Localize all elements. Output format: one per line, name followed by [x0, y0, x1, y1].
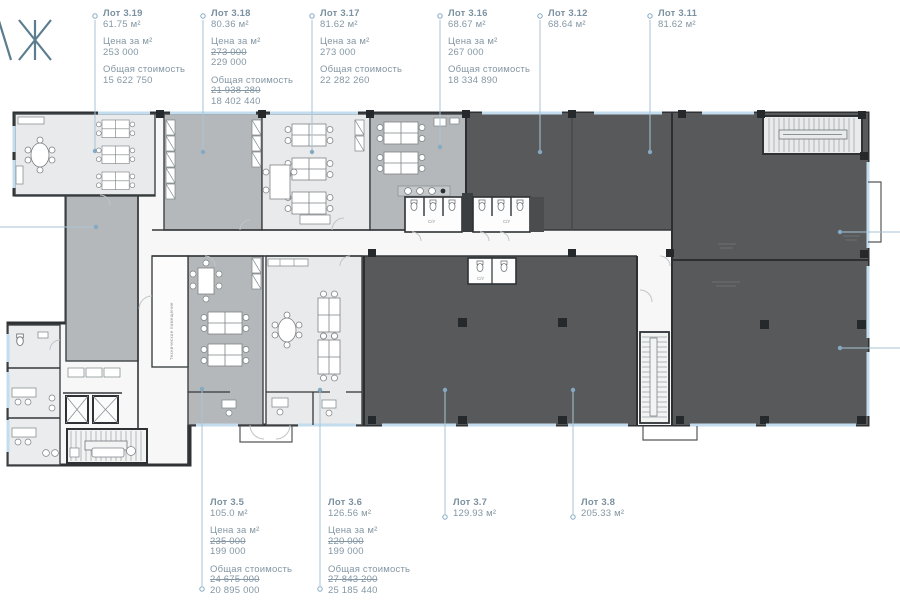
room-dark-right[interactable]	[672, 113, 868, 425]
elevators	[66, 396, 118, 423]
lot-total-old: 24 675 000	[210, 575, 292, 586]
total-caption: Общая стоимость	[448, 65, 530, 76]
lot-card-3-19[interactable]: Лот 3.19 61.75 м² Цена за м² 253 000 Общ…	[103, 9, 185, 86]
lot-area: 129.93 м²	[453, 509, 496, 520]
bathroom-middle	[468, 258, 516, 284]
lot-card-3-8[interactable]: Лот 3.8 205.33 м²	[581, 498, 624, 519]
lot-title: Лот 3.7	[453, 498, 496, 509]
price-caption: Цена за м²	[103, 37, 185, 48]
price-caption: Цена за м²	[210, 526, 292, 537]
lot-total-old: 27 843 200	[328, 575, 410, 586]
lot-title: Лот 3.8	[581, 498, 624, 509]
lot-card-3-5[interactable]: Лот 3.5 105.0 м² Цена за м² 235 000 199 …	[210, 498, 292, 596]
lot-price: 253 000	[103, 48, 185, 59]
lot-price: 267 000	[448, 48, 530, 59]
stairwell-top-right	[763, 116, 862, 154]
brand-logo-partial	[0, 6, 60, 70]
lot-title: Лот 3.5	[210, 498, 292, 509]
lot-area: 126.56 м²	[328, 509, 410, 520]
lot-area: 205.33 м²	[581, 509, 624, 520]
lot-title: Лот 3.18	[211, 9, 293, 20]
stairwell-right	[640, 332, 669, 423]
lot-title: Лот 3.6	[328, 498, 410, 509]
lot-price: 199 000	[328, 547, 410, 558]
price-caption: Цена за м²	[328, 526, 410, 537]
lot-total-old: 21 938 280	[211, 86, 293, 97]
lot-price: 273 000	[320, 48, 402, 59]
lot-title: Лот 3.17	[320, 9, 402, 20]
floorplan-page: { "logo": { "visible_letters": "АЖ" }, "…	[0, 0, 900, 604]
price-caption: Цена за м²	[320, 37, 402, 48]
lot-total: 18 334 890	[448, 76, 530, 87]
lot-area: 68.64 м²	[548, 20, 588, 31]
lot-total: 25 185 440	[328, 586, 410, 597]
logo-letters-icon	[0, 20, 51, 60]
lot-card-3-7[interactable]: Лот 3.7 129.93 м²	[453, 498, 496, 519]
tech-room-label: Техническое помещение	[169, 302, 174, 360]
price-caption: Цена за м²	[211, 37, 293, 48]
lot-title: Лот 3.11	[658, 9, 697, 20]
total-caption: Общая стоимость	[103, 65, 185, 76]
wc-label-1: С/У	[428, 219, 435, 224]
total-caption: Общая стоимость	[320, 65, 402, 76]
lot-total: 22 282 260	[320, 76, 402, 87]
lot-card-3-11[interactable]: Лот 3.11 81.62 м²	[658, 9, 697, 30]
lot-area: 80.36 м²	[211, 20, 293, 31]
lot-card-3-17[interactable]: Лот 3.17 81.62 м² Цена за м² 273 000 Общ…	[320, 9, 402, 86]
lot-total: 20 895 000	[210, 586, 292, 597]
lot-title: Лот 3.16	[448, 9, 530, 20]
room-lot-3-18[interactable]	[164, 114, 262, 230]
lot-total: 15 622 750	[103, 76, 185, 87]
floor-plan: С/У С/У С/У	[0, 0, 900, 604]
lot-card-3-18[interactable]: Лот 3.18 80.36 м² Цена за м² 273 000 229…	[211, 9, 293, 107]
lot-card-3-16[interactable]: Лот 3.16 68.67 м² Цена за м² 267 000 Общ…	[448, 9, 530, 86]
lot-title: Лот 3.12	[548, 9, 588, 20]
room-gray-left[interactable]	[66, 196, 138, 361]
wc-label-3: С/У	[477, 276, 484, 281]
lot-title: Лот 3.19	[103, 9, 185, 20]
lot-total: 18 402 440	[211, 97, 293, 108]
lot-area: 68.67 м²	[448, 20, 530, 31]
lot-price: 199 000	[210, 547, 292, 558]
lot-area: 105.0 м²	[210, 509, 292, 520]
lot-price: 229 000	[211, 58, 293, 69]
stairwell-bottom-left	[67, 429, 147, 463]
lot-area: 61.75 м²	[103, 20, 185, 31]
lot-area: 81.62 м²	[658, 20, 697, 31]
lot-area: 81.62 м²	[320, 20, 402, 31]
lot-card-3-6[interactable]: Лот 3.6 126.56 м² Цена за м² 220 000 199…	[328, 498, 410, 596]
price-caption: Цена за м²	[448, 37, 530, 48]
lot-card-3-12[interactable]: Лот 3.12 68.64 м²	[548, 9, 588, 30]
wc-label-2: С/У	[503, 219, 510, 224]
